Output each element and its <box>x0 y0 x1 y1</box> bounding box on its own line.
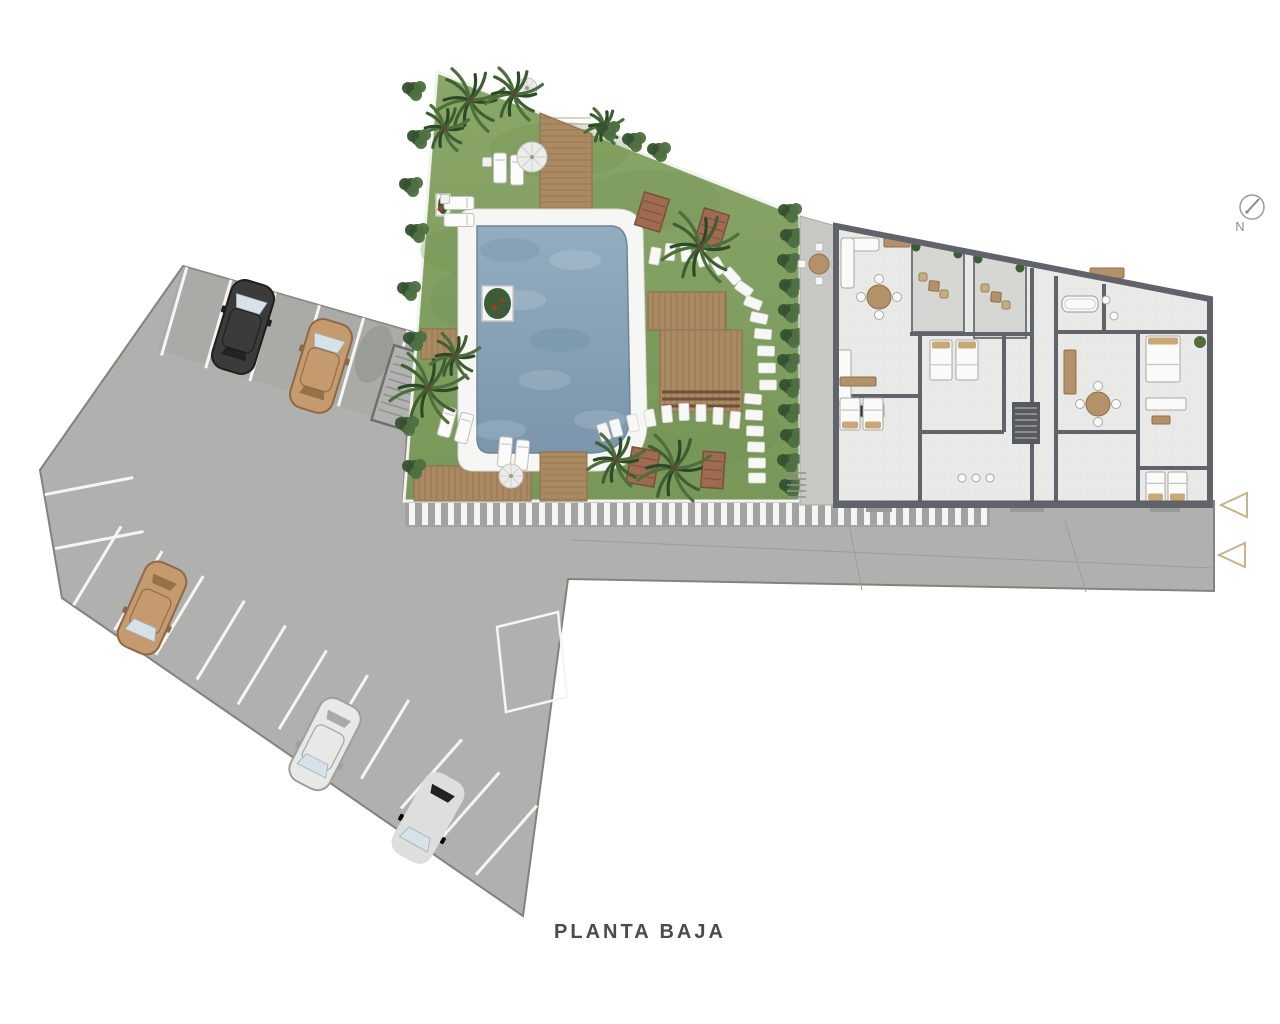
bush-clump <box>788 436 800 448</box>
crosswalk-stripe <box>539 503 545 525</box>
crosswalk-stripe <box>630 503 636 525</box>
crosswalk-stripe <box>643 503 649 525</box>
stepping-stone <box>748 458 765 468</box>
parasol-pole <box>530 155 534 159</box>
single-bed <box>930 340 952 380</box>
single-bed <box>863 398 883 430</box>
ground-floor-plan: PLANTA BAJA N <box>0 0 1280 1024</box>
deck-below-pool <box>540 452 587 501</box>
stepping-stone <box>713 407 724 424</box>
crosswalk-stripe <box>734 503 740 525</box>
palm-trunk <box>467 97 473 103</box>
bush-clump <box>410 467 422 479</box>
bush-clump <box>788 236 800 248</box>
bed-pillow <box>958 342 976 349</box>
garden-bench <box>701 451 725 488</box>
palm-trunk <box>452 353 458 359</box>
crosswalk-stripe <box>617 503 623 525</box>
stepping-stone <box>760 380 777 390</box>
bush-clump <box>403 424 415 436</box>
planter-flowers <box>438 207 443 212</box>
bush <box>407 129 431 149</box>
lounger-body <box>444 214 474 227</box>
bush-clump <box>410 89 422 101</box>
single-bed <box>956 340 978 380</box>
sink <box>1102 296 1110 304</box>
entrance-arrow-icon <box>1219 543 1245 567</box>
stepping-stone <box>661 405 672 423</box>
bush-clump <box>604 129 616 141</box>
crosswalk-stripe <box>656 503 662 525</box>
single-bed <box>1146 472 1165 502</box>
wardrobe <box>1064 350 1076 394</box>
crosswalk-stripe <box>578 503 584 525</box>
stepping-stone <box>744 393 762 404</box>
crosswalk-stripe <box>604 503 610 525</box>
bush-clump <box>785 261 797 273</box>
stepping-stone <box>746 426 763 437</box>
crosswalk-stripe <box>409 503 415 525</box>
stepping-stone <box>729 411 740 429</box>
crosswalk-stripe <box>825 503 831 525</box>
double-bed <box>1146 336 1180 382</box>
bush-clump <box>407 185 419 197</box>
bush-clump <box>787 386 799 398</box>
crosswalk-stripe <box>669 503 675 525</box>
crosswalk-stripe <box>500 503 506 525</box>
bush-clump <box>405 289 417 301</box>
dining-chair <box>1076 400 1085 409</box>
water-shadow <box>480 238 540 262</box>
palm-trunk <box>613 457 619 463</box>
north-indicator-icon <box>1240 195 1264 219</box>
bed-pillow <box>1148 494 1163 501</box>
dining-chair <box>1112 400 1121 409</box>
planter-foliage <box>484 288 511 319</box>
terrace-table <box>991 292 1002 303</box>
sun-lounger <box>494 153 507 183</box>
bush-clump <box>655 150 667 162</box>
crosswalk-stripe <box>682 503 688 525</box>
terrace-chair <box>940 290 948 298</box>
bed-pillow <box>932 342 950 349</box>
crosswalk-stripe <box>786 503 792 525</box>
dining-chair <box>857 293 866 302</box>
palm-trunk <box>671 465 677 471</box>
palm-trunk <box>441 125 447 131</box>
patio-table <box>809 254 829 274</box>
bed-pillow <box>1148 338 1178 345</box>
garden-layer <box>390 68 804 501</box>
sun-lounger <box>444 214 474 227</box>
stepping-stone <box>757 346 774 357</box>
planter-flowers <box>500 299 504 303</box>
single-bed <box>1168 472 1187 502</box>
bush-clump <box>786 411 798 423</box>
bush-clump <box>787 286 799 298</box>
crosswalk-stripe <box>760 503 766 525</box>
bush-clump <box>415 137 427 149</box>
crosswalk-stripe <box>565 503 571 525</box>
bush-clump <box>413 231 425 243</box>
deck-platform-1 <box>648 292 726 330</box>
dining-table <box>867 285 891 309</box>
crosswalk-stripe <box>448 503 454 525</box>
site-plan-stage: PLANTA BAJA N <box>0 0 1280 1024</box>
lounger-body <box>494 153 507 183</box>
parasol <box>517 142 547 172</box>
crosswalk-stripe <box>422 503 428 525</box>
crosswalk-stripe <box>747 503 753 525</box>
bed-pillow <box>865 422 881 429</box>
side-table <box>483 158 492 167</box>
patio-chair <box>815 243 823 251</box>
parasol-pole <box>525 86 529 90</box>
bush <box>399 177 423 197</box>
terrace-table <box>929 281 940 292</box>
single-bed <box>840 398 860 430</box>
stepping-stone <box>747 442 764 453</box>
terrace-chair <box>919 273 927 281</box>
bush-clump <box>788 336 800 348</box>
indoor-plant <box>1194 336 1206 348</box>
stepping-stone <box>696 405 706 422</box>
terrace-chair <box>1002 301 1010 309</box>
crosswalk-stripe <box>708 503 714 525</box>
bush-clump <box>787 486 799 498</box>
palm-trunk <box>511 91 517 97</box>
sink <box>972 474 980 482</box>
patio-chair <box>798 260 806 268</box>
dining-chair <box>875 311 884 320</box>
crosswalk-stripe <box>721 503 727 525</box>
water-highlight <box>519 370 571 390</box>
crosswalk-stripe <box>773 503 779 525</box>
crosswalk-stripe <box>435 503 441 525</box>
coffee-table <box>1152 416 1170 424</box>
bush-clump <box>786 211 798 223</box>
crosswalk-stripe <box>799 503 805 525</box>
stepping-stone <box>679 403 690 420</box>
bathtub <box>1062 296 1098 312</box>
water-highlight <box>549 250 601 270</box>
kitchen-island <box>840 377 876 386</box>
bush-clump <box>785 461 797 473</box>
crosswalk-stripe <box>474 503 480 525</box>
palm-trunk <box>425 385 431 391</box>
sun-lounger <box>497 436 513 467</box>
crosswalk-stripe <box>591 503 597 525</box>
palm-trunk <box>697 244 703 250</box>
bush-clump <box>785 361 797 373</box>
crosswalk-stripe <box>526 503 532 525</box>
dining-chair <box>1094 418 1103 427</box>
parasol <box>499 464 523 488</box>
planter-flowers <box>492 305 497 310</box>
sink <box>1110 312 1118 320</box>
sofa <box>841 238 854 288</box>
north-needle-tip <box>1245 210 1248 213</box>
sink <box>958 474 966 482</box>
bush <box>397 281 421 301</box>
bed-pillow <box>1170 494 1185 501</box>
bush-clump <box>411 339 423 351</box>
side-table <box>441 195 450 204</box>
sink <box>986 474 994 482</box>
bush-clump <box>630 140 642 152</box>
stepping-stone <box>745 410 763 421</box>
stepping-stone <box>759 363 776 373</box>
crosswalk-stripe <box>695 503 701 525</box>
north-needle <box>1247 199 1259 212</box>
stepping-stone <box>754 328 772 339</box>
bush-clump <box>786 311 798 323</box>
terrace-chair <box>981 284 989 292</box>
plan-title: PLANTA BAJA <box>554 921 726 943</box>
crosswalk-stripe <box>513 503 519 525</box>
dining-chair <box>893 293 902 302</box>
patio-chair <box>815 277 823 285</box>
north-label: N <box>1235 219 1244 234</box>
crosswalk-stripe <box>461 503 467 525</box>
water-shadow <box>530 328 590 352</box>
entrance-arrow-icon <box>1221 493 1247 517</box>
dining-chair <box>875 275 884 284</box>
bed-pillow <box>842 422 858 429</box>
lounger-body <box>497 436 513 467</box>
bush <box>402 81 426 101</box>
dining-chair <box>1094 382 1103 391</box>
parasol-pole <box>509 474 513 478</box>
crosswalk-stripe <box>487 503 493 525</box>
crosswalk-stripe <box>812 503 818 525</box>
sofa <box>1146 398 1186 410</box>
building-layer <box>836 226 1213 512</box>
dining-table <box>1086 392 1110 416</box>
stepping-stone <box>749 473 766 483</box>
crosswalk-stripe <box>552 503 558 525</box>
